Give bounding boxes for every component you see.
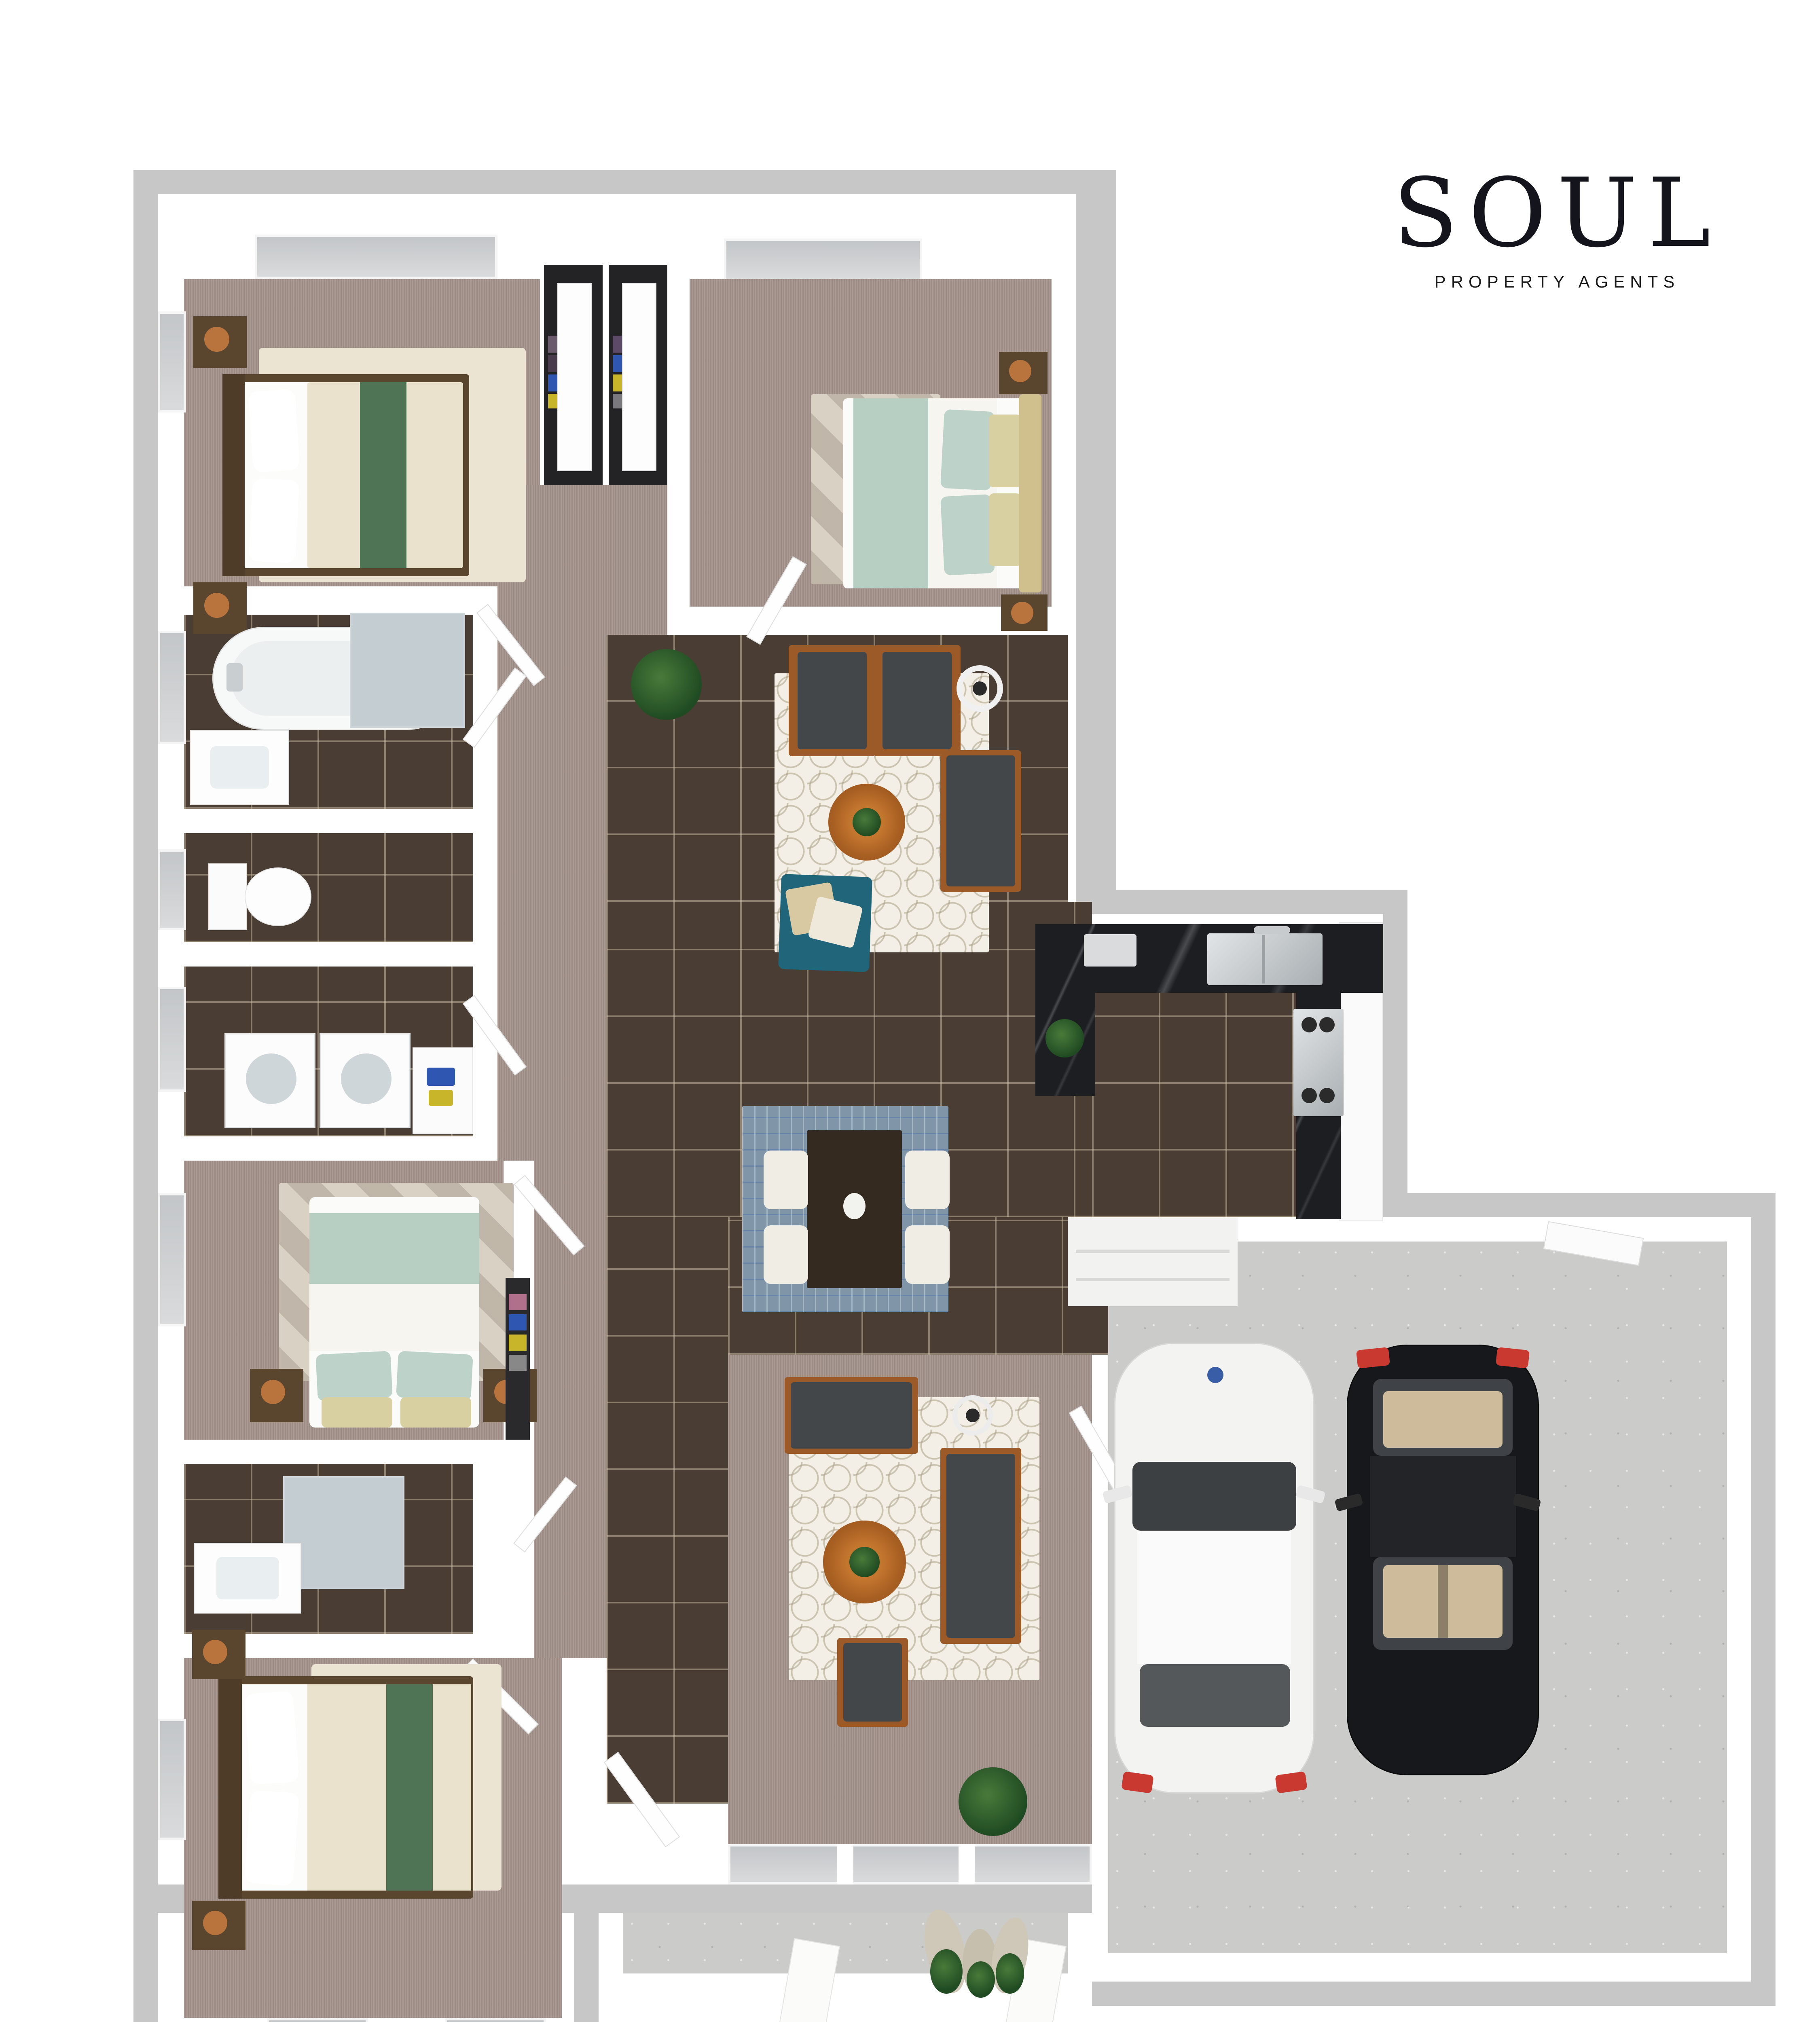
- coffee-table-2-plant: [849, 1547, 880, 1577]
- bed1-lamp-2: [204, 593, 229, 618]
- window-left-5: [158, 1193, 186, 1326]
- white-car-rear-glass: [1140, 1664, 1290, 1727]
- vanity2-sink: [216, 1557, 279, 1599]
- bedroom1-window: [255, 235, 497, 279]
- bed2-mint-blanket: [853, 398, 928, 588]
- front-wall-band: [599, 1885, 1092, 1913]
- bed4-pillow-2: [244, 1790, 299, 1886]
- kitchen-tray: [1084, 934, 1136, 967]
- shower2-glass: [283, 1476, 404, 1589]
- black-car-roof: [1370, 1456, 1516, 1557]
- stove-burner-4: [1319, 1088, 1335, 1103]
- bed3-pillow-4: [400, 1397, 471, 1428]
- armchair1-cushion: [798, 652, 867, 749]
- black-car-taillight-1: [1356, 1347, 1390, 1368]
- bed3-lamp-1: [261, 1380, 285, 1404]
- robe-clothes-4: [509, 1355, 527, 1371]
- bed4-lamp-2: [203, 1911, 227, 1935]
- stove-burner-2: [1319, 1017, 1335, 1032]
- brand-name: SOUL: [1355, 166, 1759, 261]
- bed3-mint-blanket: [309, 1213, 479, 1284]
- toilet-bowl: [245, 867, 311, 926]
- bed4-headboard: [218, 1676, 242, 1899]
- window-left-4: [158, 987, 186, 1092]
- black-car-rear-seat: [1383, 1391, 1503, 1448]
- kitchen-faucet: [1254, 926, 1290, 934]
- window-left-6: [158, 1719, 186, 1840]
- porch-plant-3: [996, 1953, 1024, 1994]
- porch-plant-2: [967, 1961, 995, 1998]
- sofa2-cushion: [946, 1454, 1015, 1638]
- bed2-pillow-4: [989, 493, 1021, 566]
- washer-door: [246, 1053, 296, 1104]
- bed3-pillow-3: [322, 1397, 392, 1428]
- armchair3-cushion: [843, 1643, 902, 1722]
- bedroom4-window-2: [445, 2018, 546, 2022]
- bathtub-faucet: [226, 663, 243, 692]
- armchair2-cushion: [882, 652, 952, 749]
- black-car-console: [1438, 1565, 1448, 1638]
- front-windows: [728, 1844, 1092, 1885]
- closet-right-door: [622, 283, 656, 471]
- bed4-lamp-1: [203, 1640, 227, 1664]
- robe-clothes-3: [509, 1335, 527, 1351]
- vanity1-sink: [210, 746, 269, 789]
- bed4-pillow-1: [244, 1691, 299, 1785]
- bed3-pillow-2: [396, 1351, 473, 1401]
- bed4-runner: [386, 1684, 433, 1891]
- toilet-tank: [208, 863, 247, 930]
- kitchen-sink-divider: [1262, 935, 1265, 984]
- robe-clothes-1: [509, 1294, 527, 1310]
- window-left-3: [158, 849, 186, 930]
- robe-clothes-2: [509, 1314, 527, 1330]
- bed2-headboard: [1019, 394, 1041, 592]
- dining-chair-2: [764, 1225, 808, 1284]
- black-car-taillight-2: [1496, 1347, 1530, 1368]
- brand-logo: SOUL PROPERTY AGENTS: [1355, 166, 1759, 292]
- front-window-mullion-1: [837, 1844, 853, 1885]
- floor-plan: [0, 0, 1820, 2022]
- garage-step-2: [1076, 1278, 1230, 1281]
- bed1-runner: [360, 382, 406, 568]
- bed1-headboard: [222, 374, 245, 576]
- stove-burner-1: [1302, 1017, 1317, 1032]
- bedroom4-window-1: [267, 2018, 368, 2022]
- porch-plant-1: [930, 1949, 963, 1994]
- floor-lamp-2-hub: [966, 1409, 980, 1422]
- bed1-pillow-2: [249, 478, 300, 563]
- white-car-windshield: [1132, 1462, 1296, 1531]
- closet-left-door: [557, 283, 592, 471]
- dining-vase: [843, 1193, 866, 1219]
- bed2-pillow-3: [989, 415, 1021, 487]
- bed2-pillow-2: [940, 494, 995, 575]
- white-car-badge: [1207, 1367, 1223, 1383]
- dining-chair-1: [764, 1151, 808, 1209]
- shower1-glass: [350, 613, 465, 728]
- bed2-pillow-1: [940, 409, 995, 491]
- dining-chair-3: [905, 1151, 950, 1209]
- bed1-pillow-1: [248, 389, 300, 473]
- stove-burner-3: [1302, 1088, 1317, 1103]
- kitchen-stove: [1293, 1009, 1344, 1116]
- bed3-pillow-1: [315, 1351, 393, 1401]
- garage-landing: [1068, 1217, 1238, 1306]
- bed2-lamp-1: [1009, 360, 1031, 382]
- coffee-table-1-plant: [853, 808, 881, 836]
- bed3-duvet: [309, 1284, 479, 1351]
- window-left-1: [158, 311, 186, 412]
- laundry-basket-blue: [427, 1068, 455, 1086]
- floor-lamp-1-hub: [973, 681, 987, 696]
- entry-floor: [607, 1217, 728, 1804]
- dining-chair-4: [905, 1225, 950, 1284]
- loveseat-cushion: [791, 1382, 912, 1449]
- window-left-2: [158, 631, 186, 744]
- garage-step-1: [1076, 1250, 1230, 1253]
- sitting-plant: [959, 1767, 1027, 1836]
- white-car-roof: [1137, 1531, 1291, 1664]
- bedroom2-window: [724, 239, 922, 281]
- bed2-lamp-2: [1011, 602, 1033, 624]
- brand-tagline: PROPERTY AGENTS: [1355, 272, 1759, 292]
- sofa1-cushion: [946, 755, 1015, 886]
- bed1-lamp-1: [204, 327, 229, 352]
- dryer-door: [341, 1053, 392, 1104]
- laundry-basket-yellow: [429, 1090, 453, 1106]
- kitchen-peninsula-plant: [1045, 1019, 1084, 1058]
- front-window-mullion-2: [959, 1844, 975, 1885]
- living-plant: [631, 649, 702, 720]
